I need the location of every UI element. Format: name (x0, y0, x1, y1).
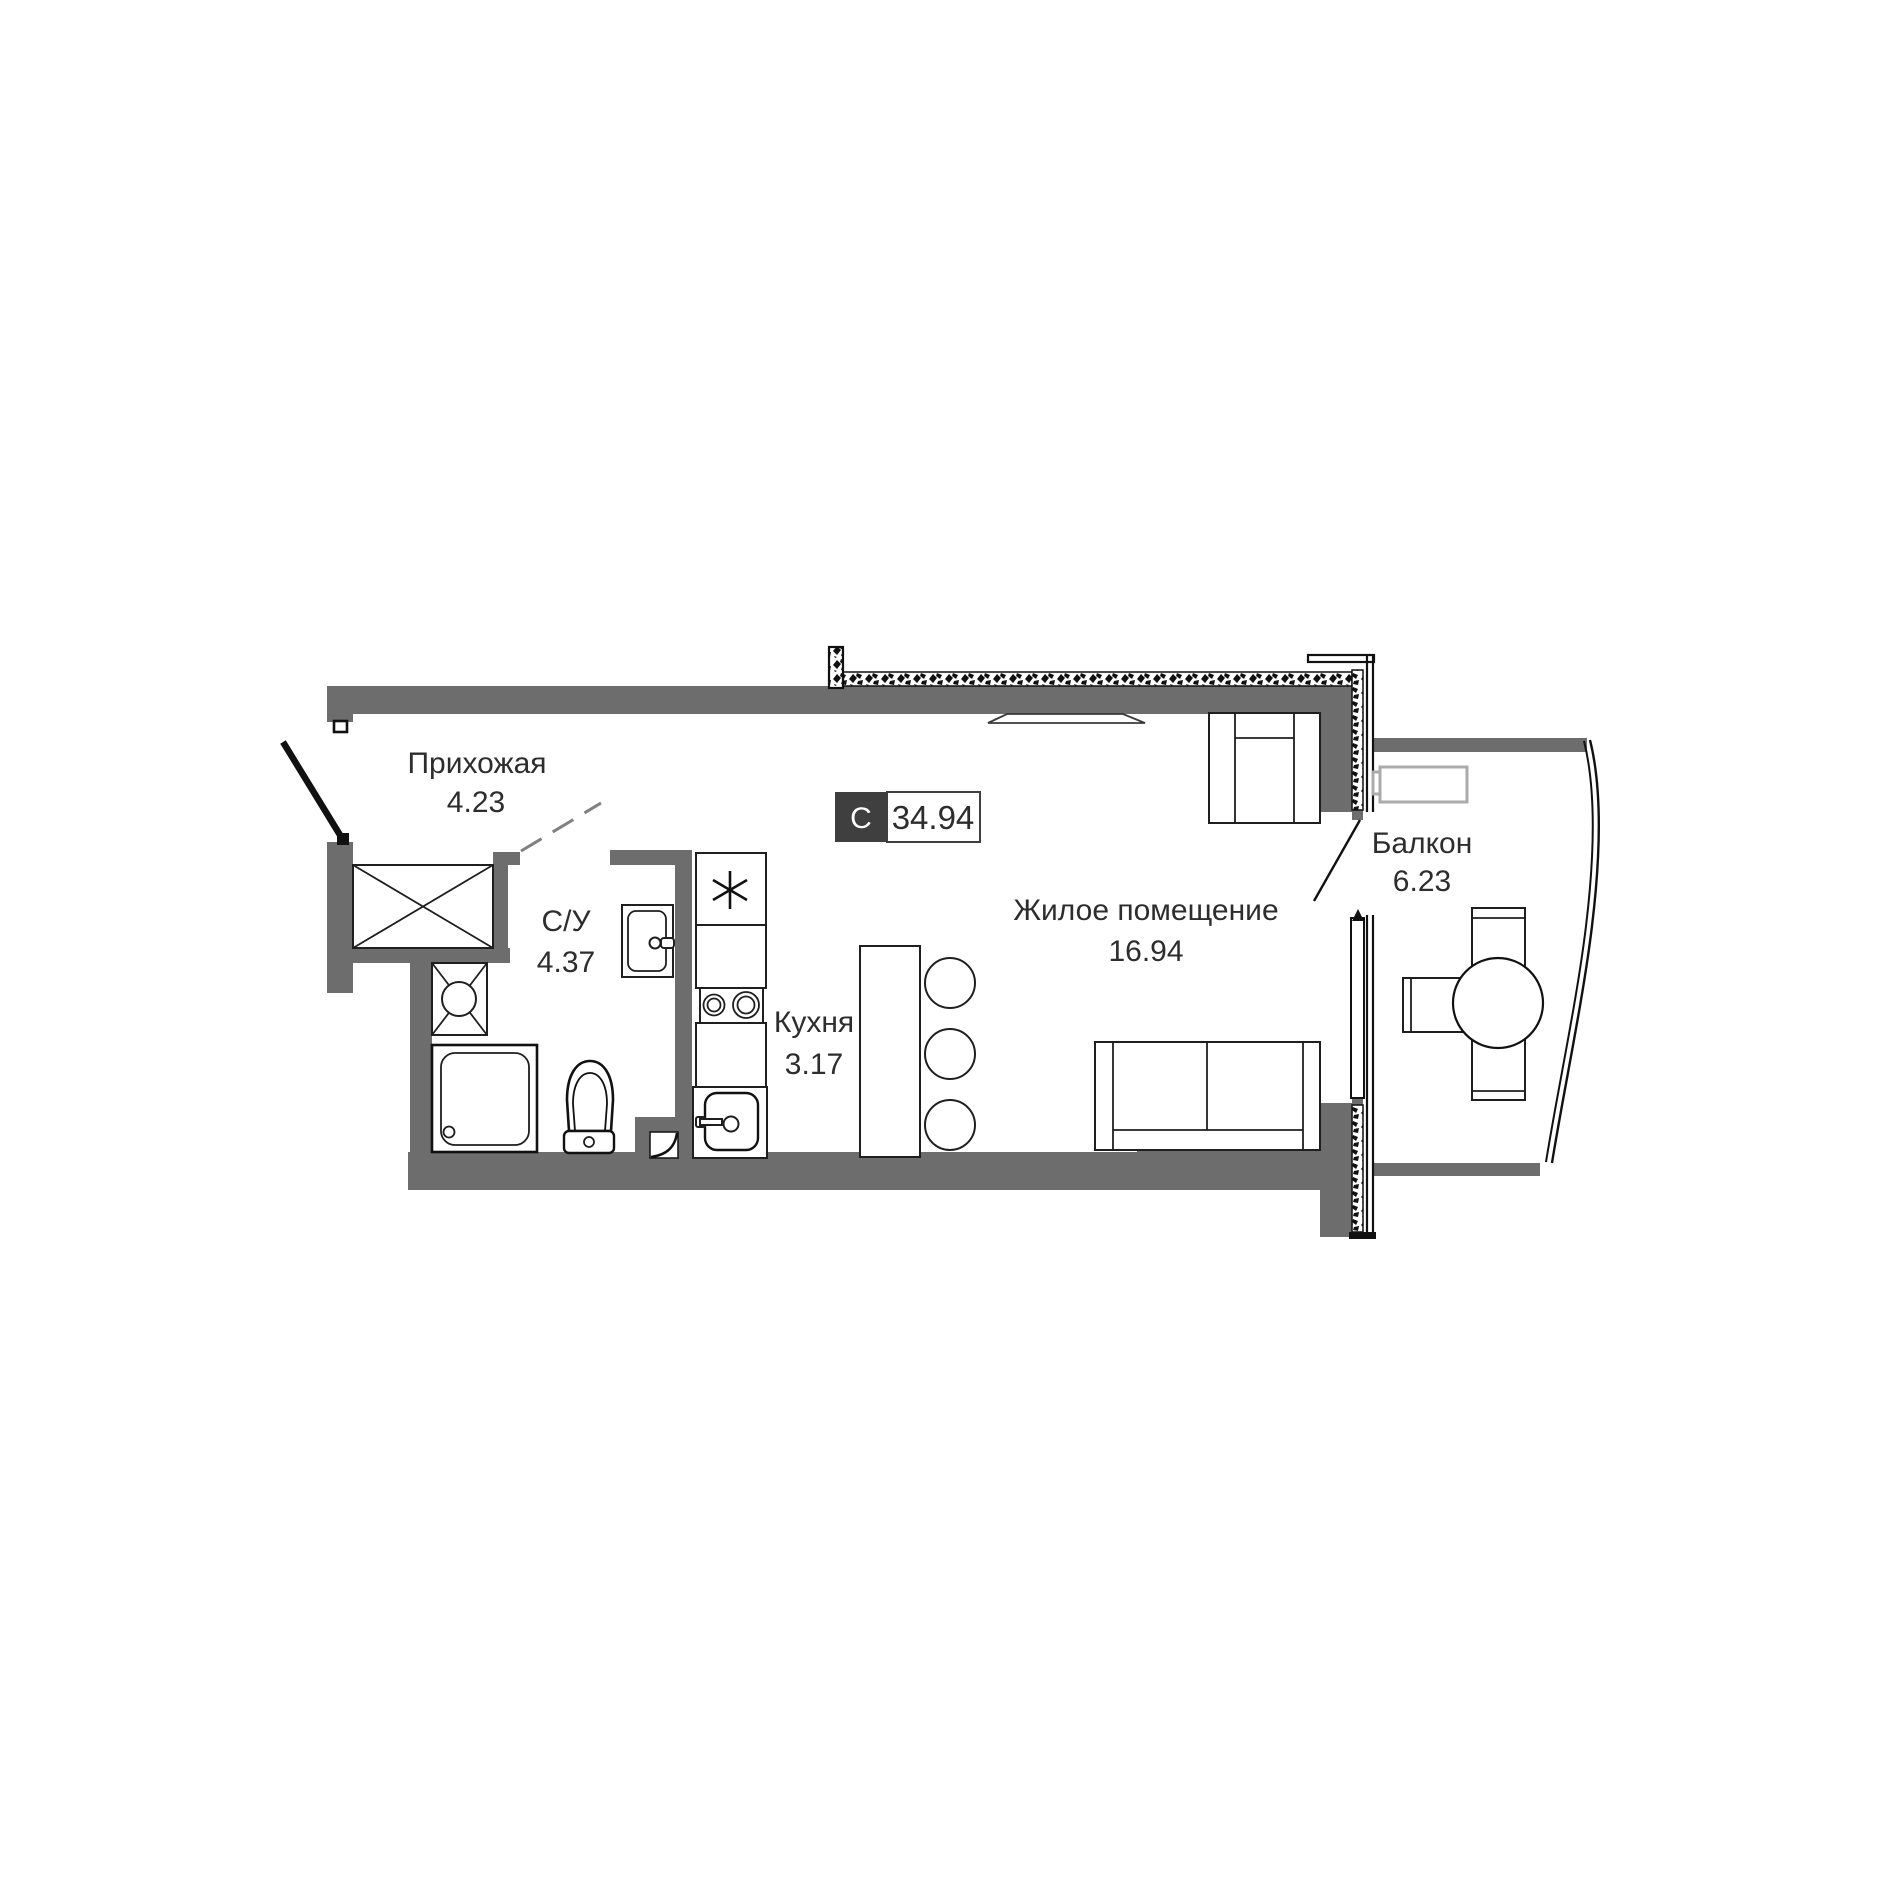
left-wall (327, 842, 353, 993)
dining-table (860, 946, 920, 1157)
sink-faucet (661, 938, 674, 948)
area-bathroom: 4.37 (537, 946, 595, 979)
area-living: 16.94 (1108, 935, 1183, 968)
wardrobe (1209, 713, 1320, 823)
balcony-cabinet (1373, 767, 1467, 802)
area-kitchen: 3.17 (785, 1048, 843, 1081)
balcony-slab-band (1308, 655, 1374, 662)
kitchen-counter (693, 853, 767, 1158)
kitchen-faucet (700, 1119, 722, 1125)
hatch-right-upper (1352, 670, 1363, 810)
frame-bottom-cap (1349, 1232, 1376, 1239)
label-hallway: Прихожая (407, 747, 546, 780)
floor-plan: Прихожая 4.23 С/У 4.37 Кухня 3.17 Жилое … (0, 0, 1884, 1884)
label-kitchen: Кухня (774, 1006, 854, 1039)
stove (700, 988, 763, 1023)
balcony-door-swing-line (1314, 820, 1360, 901)
balcony-bottom-wall (1374, 1163, 1540, 1176)
label-living: Жилое помещение (1013, 894, 1278, 927)
chair (925, 1029, 975, 1079)
sink-faucet-base (650, 938, 661, 949)
opening-dashed-line (521, 803, 601, 851)
balcony-furniture (1373, 767, 1543, 1100)
balcony-top-wall (1374, 738, 1587, 752)
hatch-right-lower (1352, 1105, 1363, 1232)
area-hallway: 4.23 (447, 786, 505, 819)
balcony-pier (1320, 1103, 1352, 1237)
toilet (564, 1061, 614, 1153)
bathroom-left-wall (410, 950, 432, 1153)
service-shaft (650, 1132, 678, 1158)
badge-total-area: 34.94 (892, 799, 975, 836)
bottom-wall (408, 1152, 1137, 1190)
total-area-badge: С 34.94 (835, 792, 980, 842)
chair (925, 958, 975, 1008)
balcony-door-sill-bottom (1352, 1098, 1363, 1105)
hall-bath-wall-stub (493, 852, 520, 865)
hatch-top-strip (830, 672, 1352, 686)
top-right-corner-wall (1318, 686, 1352, 812)
balcony-door-leaf (1351, 918, 1364, 1098)
sofa (1095, 1042, 1320, 1150)
washing-machine (432, 963, 487, 1035)
balcony-curved-glass-inner (1546, 741, 1593, 1162)
bathroom-right-wall (675, 850, 692, 1117)
counter-segment-2 (696, 1023, 766, 1087)
balcony-round-table (1453, 958, 1543, 1048)
badge-letter: С (850, 802, 872, 835)
entry-door-leaf (283, 742, 340, 835)
top-wall (327, 686, 1352, 714)
area-balcony: 6.23 (1393, 865, 1451, 898)
washer-drum (442, 982, 476, 1016)
label-bathroom: С/У (541, 905, 591, 938)
hallway-closet (353, 865, 493, 948)
hall-bath-wall (493, 852, 508, 962)
dining-set (860, 946, 975, 1157)
bathroom-sink (622, 905, 674, 977)
top-wall-left-end (327, 686, 353, 722)
shower-tray (432, 1045, 537, 1152)
door-leaf-tip (1352, 909, 1364, 921)
toilet-tank (564, 1131, 614, 1153)
label-balcony: Балкон (1372, 827, 1473, 860)
chair (925, 1100, 975, 1150)
bottom-wall-thick (1137, 1148, 1322, 1190)
hatch-stub (829, 647, 843, 688)
counter-segment (696, 925, 766, 988)
balcony-door-sill-top (1352, 810, 1363, 820)
entry-door (283, 721, 349, 845)
window-sill-ledge (988, 714, 1145, 723)
floor-plan-page: Прихожая 4.23 С/У 4.37 Кухня 3.17 Жилое … (0, 0, 1884, 1884)
door-jamb-top (334, 721, 347, 732)
